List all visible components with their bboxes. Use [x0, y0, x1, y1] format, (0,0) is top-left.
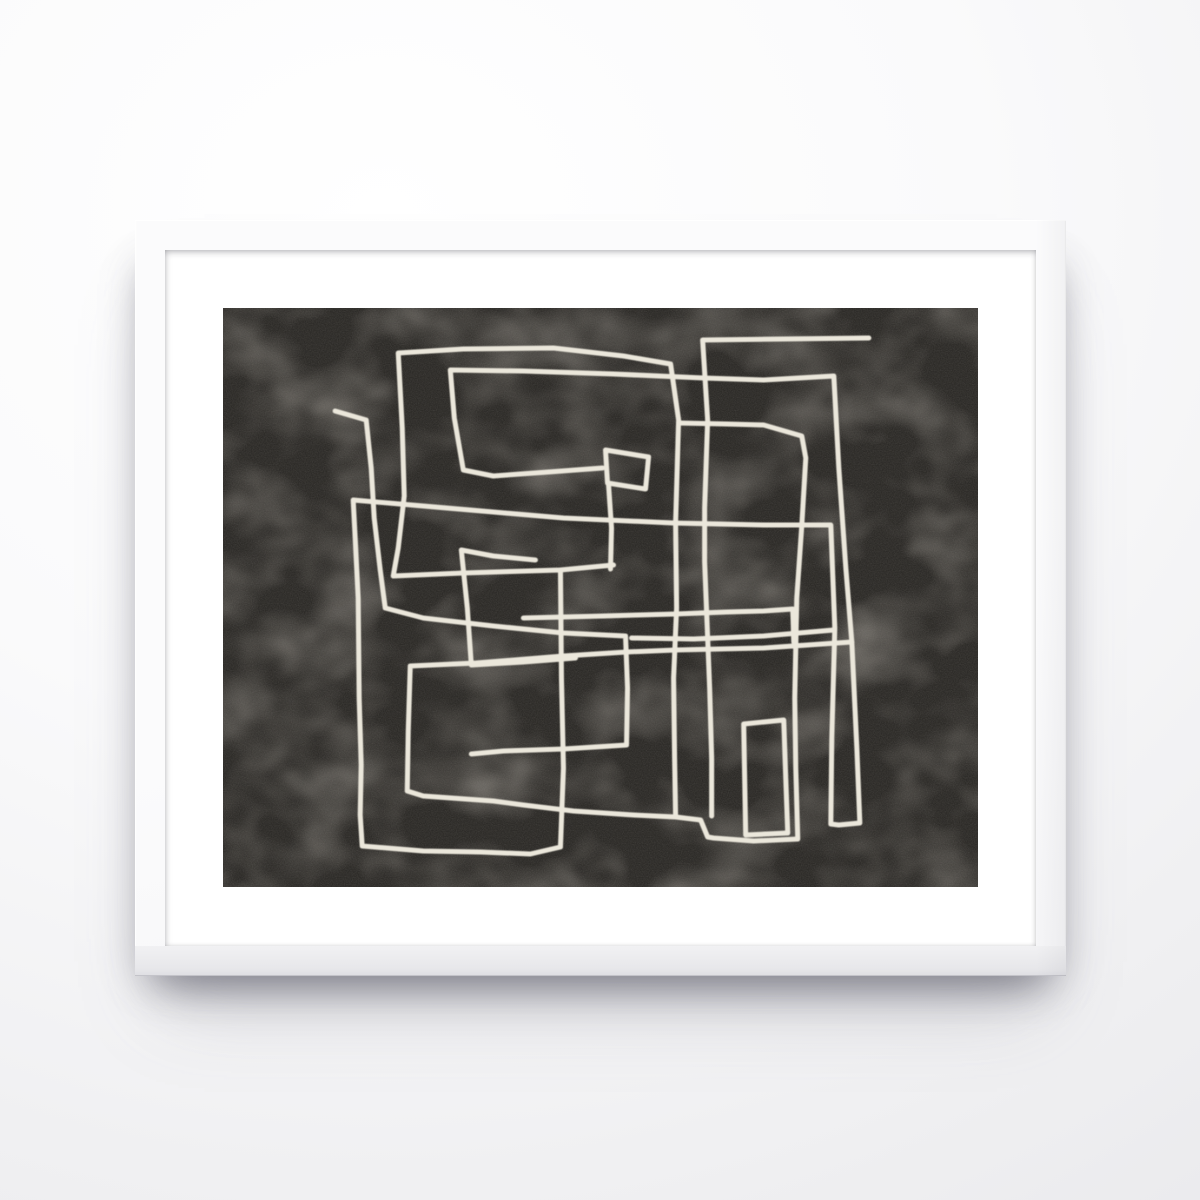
picture-mat	[165, 250, 1036, 946]
frame-right-bar	[1036, 220, 1066, 976]
poster-frame	[135, 220, 1066, 976]
frame-bottom-bar	[135, 946, 1066, 976]
product-photo-scene: { "scene": { "description": "Photograph …	[0, 0, 1200, 1200]
art-texture-grain	[223, 308, 978, 887]
artwork-canvas	[223, 308, 978, 887]
maze-drawing-svg	[223, 308, 978, 887]
maze-line-spiral-stem	[609, 484, 612, 569]
